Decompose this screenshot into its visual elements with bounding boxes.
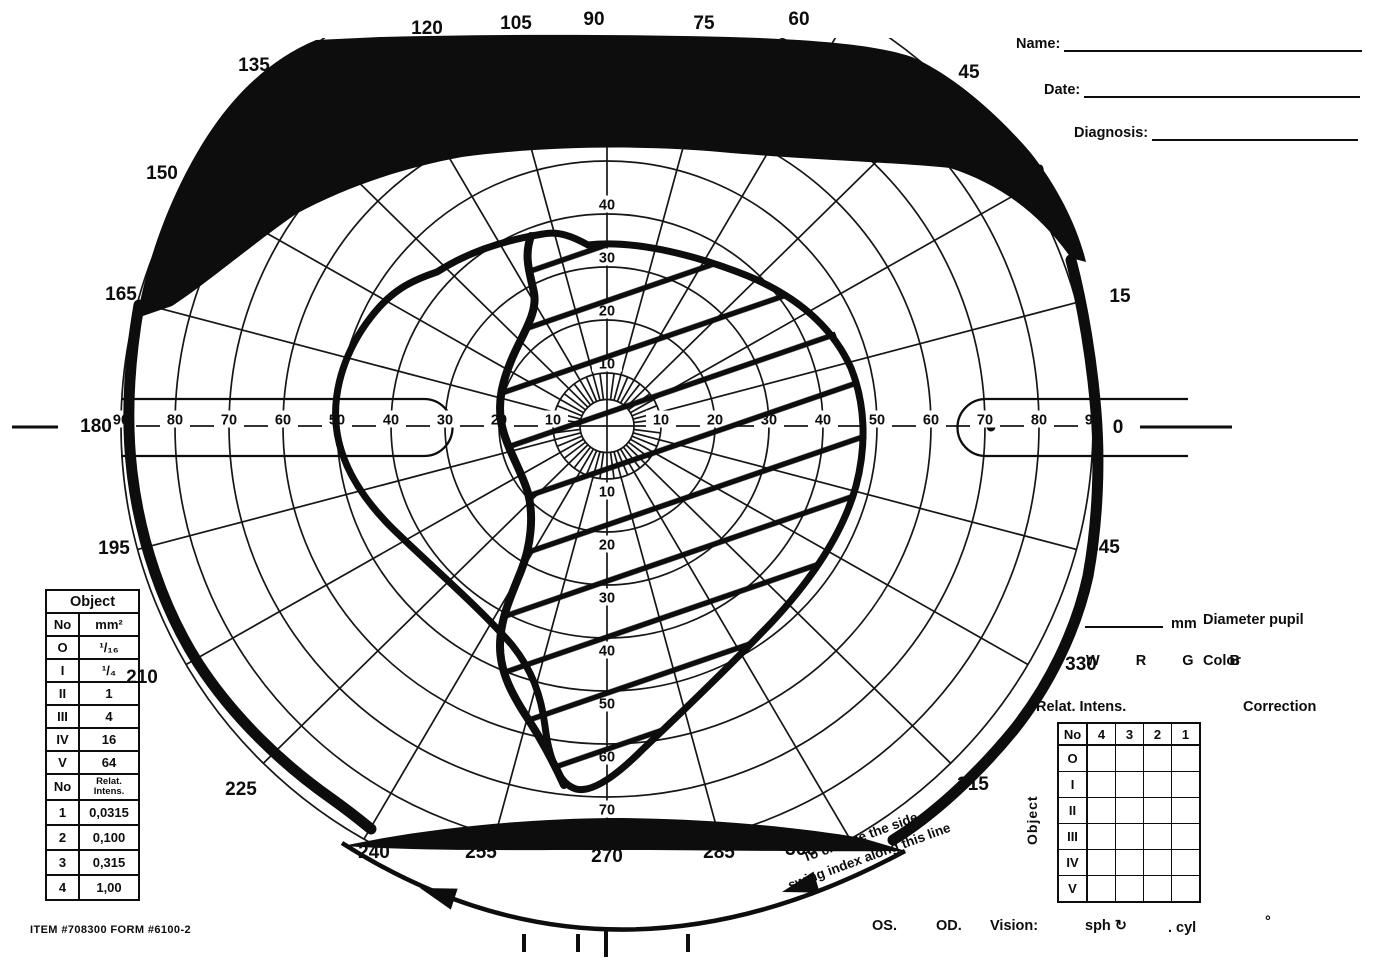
relat-col-header-1: 1 xyxy=(1172,723,1201,745)
object-table: ObjectNomm²O¹/₁₆I¹/₄II1III4IV16V64NoRela… xyxy=(45,589,140,901)
ring-label-right-60: 60 xyxy=(923,413,939,429)
relat-empty-cell xyxy=(1144,772,1172,798)
relat-empty-cell xyxy=(1144,876,1172,903)
relat-empty-cell xyxy=(1144,745,1172,772)
meridian-label-15: 15 xyxy=(1109,286,1131,307)
pupil-diameter-row: mm xyxy=(1085,614,1197,632)
meridian-label-225: 225 xyxy=(225,779,257,800)
ring-label-left-80: 80 xyxy=(167,413,183,429)
degree-symbol: ° xyxy=(1265,914,1271,930)
od-label: OD. xyxy=(936,918,962,934)
date-input-line xyxy=(1084,82,1360,98)
object-no: III xyxy=(46,705,79,728)
col-header-relat-intens: Relat.Intens. xyxy=(79,774,139,800)
meridian-label-180: 180 xyxy=(80,416,112,437)
relat-col-header-2: 2 xyxy=(1144,723,1172,745)
diagnosis-input-line xyxy=(1152,125,1358,141)
diameter-pupil-label: Diameter pupil xyxy=(1203,612,1304,628)
meridian-label-90: 90 xyxy=(583,9,604,30)
object-table-title: Object xyxy=(46,590,139,613)
ring-label-right-70: 70 xyxy=(977,413,993,429)
meridian-label-165: 165 xyxy=(105,284,137,305)
ring-label-up-40: 40 xyxy=(599,198,615,214)
swing-arrow-left-icon xyxy=(417,878,458,910)
name-input-line xyxy=(1064,36,1362,52)
relat-row-header-IV: IV xyxy=(1058,850,1087,876)
relat-empty-cell xyxy=(1116,798,1144,824)
relat-col-header-4: 4 xyxy=(1087,723,1116,745)
ring-label-left-70: 70 xyxy=(221,413,237,429)
diagnosis-field-row: Diagnosis: xyxy=(1074,125,1358,141)
name-label: Name: xyxy=(1016,36,1064,52)
vision-label: Vision: xyxy=(990,918,1038,934)
relat-empty-cell xyxy=(1172,745,1201,772)
intens-no: 1 xyxy=(46,800,79,825)
relat-empty-cell xyxy=(1087,850,1116,876)
relat-empty-cell xyxy=(1087,772,1116,798)
os-label: OS. xyxy=(872,918,897,934)
relat-empty-cell xyxy=(1087,824,1116,850)
relat-empty-cell xyxy=(1116,772,1144,798)
name-field-row: Name: xyxy=(1016,36,1362,52)
intens-no: 2 xyxy=(46,825,79,850)
object-no: IV xyxy=(46,728,79,751)
relat-col-header-3: 3 xyxy=(1116,723,1144,745)
relat-empty-cell xyxy=(1087,745,1116,772)
ring-label-left-30: 30 xyxy=(437,413,453,429)
intens-value: 0,315 xyxy=(79,850,139,875)
relat-empty-cell xyxy=(1144,798,1172,824)
object-no: II xyxy=(46,682,79,705)
intens-no: 3 xyxy=(46,850,79,875)
object-size: 4 xyxy=(79,705,139,728)
relat-row-header-I: I xyxy=(1058,772,1087,798)
relat-empty-cell xyxy=(1172,772,1201,798)
meridian-label-45: 45 xyxy=(958,62,980,83)
intens-value: 0,100 xyxy=(79,825,139,850)
ring-label-left-40: 40 xyxy=(383,413,399,429)
relat-empty-cell xyxy=(1116,850,1144,876)
form-item-number: ITEM #708300 FORM #6100-2 xyxy=(30,924,191,936)
relat-empty-cell xyxy=(1172,798,1201,824)
col-header-no: No xyxy=(46,613,79,636)
ring-label-right-80: 80 xyxy=(1031,413,1047,429)
relat-empty-cell xyxy=(1144,824,1172,850)
object-size: 16 xyxy=(79,728,139,751)
ring-label-down-70: 70 xyxy=(599,803,615,819)
intens-no: 4 xyxy=(46,875,79,900)
relat-empty-cell xyxy=(1116,824,1144,850)
goldmann-perimetry-form: 1010202030304040505060607070808090901020… xyxy=(0,0,1385,960)
plotted-field xyxy=(129,35,1098,851)
ring-label-left-60: 60 xyxy=(275,413,291,429)
meridian-label-60: 60 xyxy=(788,9,809,30)
meridian-label-195: 195 xyxy=(98,538,130,559)
relat-col-header-No: No xyxy=(1058,723,1087,745)
relat-empty-cell xyxy=(1087,798,1116,824)
meridian-label-0: 0 xyxy=(1113,417,1124,438)
relat-intens-table: No4321O I II III IV V xyxy=(1057,722,1201,903)
relat-row-header-O: O xyxy=(1058,745,1087,772)
relat-row-header-III: III xyxy=(1058,824,1087,850)
intens-value: 0,0315 xyxy=(79,800,139,825)
relat-table-side-label: Object xyxy=(1024,795,1040,845)
relat-empty-cell xyxy=(1144,850,1172,876)
relat-empty-cell xyxy=(1116,745,1144,772)
relat-intens-title: Relat. Intens. xyxy=(1036,699,1126,715)
object-size: ¹/₄ xyxy=(79,659,139,682)
correction-label: Correction xyxy=(1243,699,1316,715)
relat-empty-cell xyxy=(1172,824,1201,850)
relat-empty-cell xyxy=(1087,876,1116,903)
relat-empty-cell xyxy=(1172,876,1201,903)
mm-unit: mm xyxy=(1171,616,1197,632)
pupil-diameter-line xyxy=(1085,614,1163,628)
col-header-mm2: mm² xyxy=(79,613,139,636)
relat-row-header-II: II xyxy=(1058,798,1087,824)
color-label: Color xyxy=(1203,653,1241,669)
relat-row-header-V: V xyxy=(1058,876,1087,903)
bottom-alignment-ticks xyxy=(524,929,688,957)
relat-empty-cell xyxy=(1172,850,1201,876)
col-header-no: No xyxy=(46,774,79,800)
meridian-label-75: 75 xyxy=(693,13,715,34)
object-no: I xyxy=(46,659,79,682)
date-field-row: Date: xyxy=(1044,82,1360,98)
ring-label-right-50: 50 xyxy=(869,413,885,429)
intens-value: 1,00 xyxy=(79,875,139,900)
sph-label: sph ↻ xyxy=(1085,918,1127,934)
meridian-label-105: 105 xyxy=(500,13,532,34)
diagnosis-label: Diagnosis: xyxy=(1074,125,1152,141)
meridian-label-150: 150 xyxy=(146,163,178,184)
date-label: Date: xyxy=(1044,82,1084,98)
object-size: ¹/₁₆ xyxy=(79,636,139,659)
object-size: 64 xyxy=(79,751,139,774)
object-no: O xyxy=(46,636,79,659)
cyl-label: . cyl xyxy=(1168,920,1196,936)
object-size: 1 xyxy=(79,682,139,705)
object-no: V xyxy=(46,751,79,774)
relat-empty-cell xyxy=(1116,876,1144,903)
